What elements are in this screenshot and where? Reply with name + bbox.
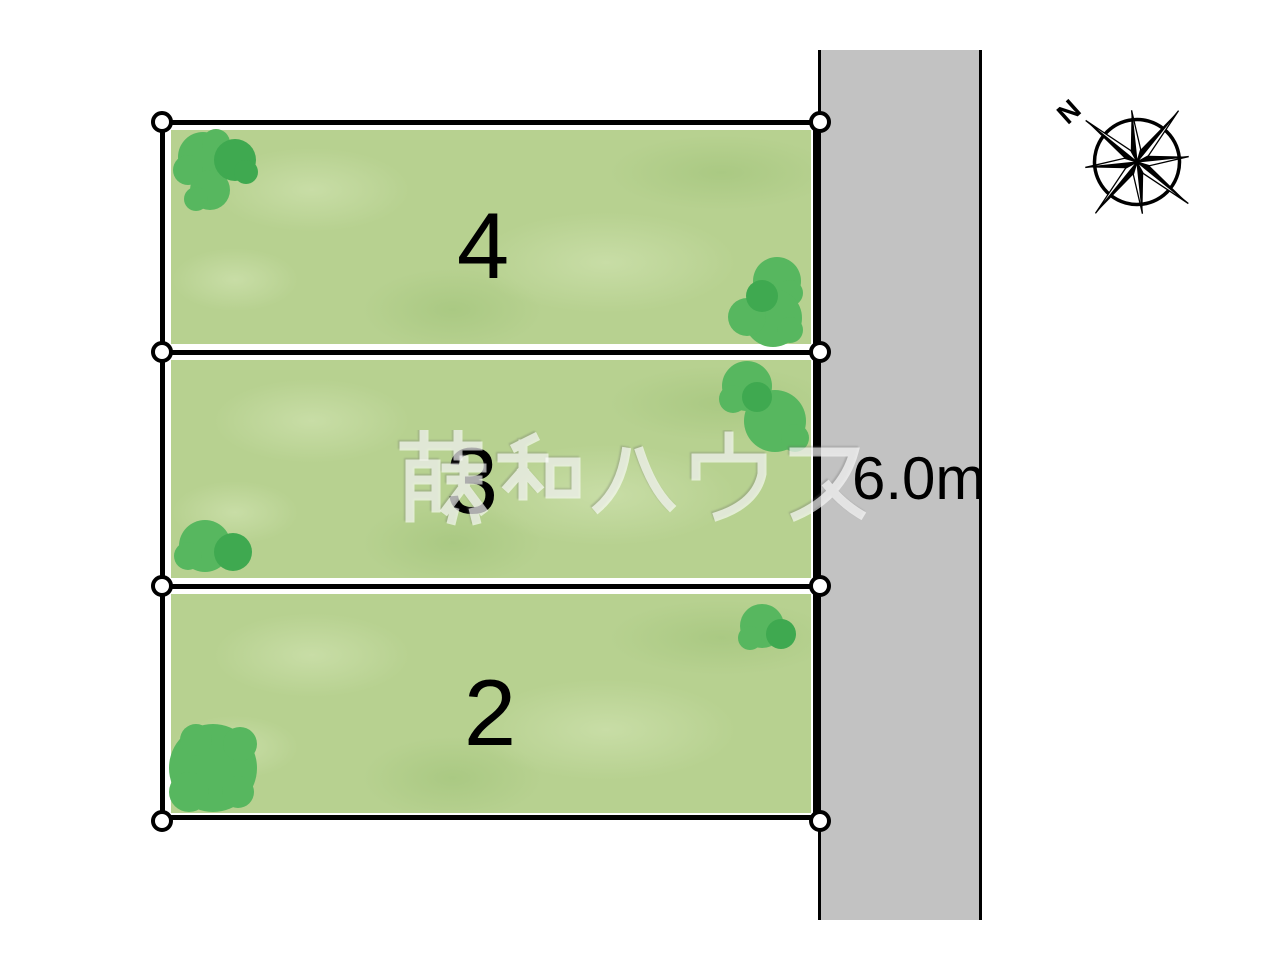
compass-rose [1057, 82, 1217, 242]
corner-marker [151, 341, 173, 363]
corner-marker [809, 111, 831, 133]
corner-marker [809, 341, 831, 363]
corner-marker [809, 575, 831, 597]
corner-marker [809, 810, 831, 832]
lot-divider [160, 584, 820, 589]
plot-layout-map: 6.0m [0, 0, 1280, 960]
plot-3-label: 3 [446, 434, 498, 528]
road-width-label: 6.0m [852, 446, 985, 512]
corner-marker [151, 575, 173, 597]
compass-north-label: N [1051, 93, 1087, 130]
plot-4-label: 4 [457, 199, 509, 293]
corner-marker [151, 111, 173, 133]
corner-marker [151, 810, 173, 832]
lot-divider [160, 350, 820, 355]
plot-2-label: 2 [464, 666, 516, 760]
